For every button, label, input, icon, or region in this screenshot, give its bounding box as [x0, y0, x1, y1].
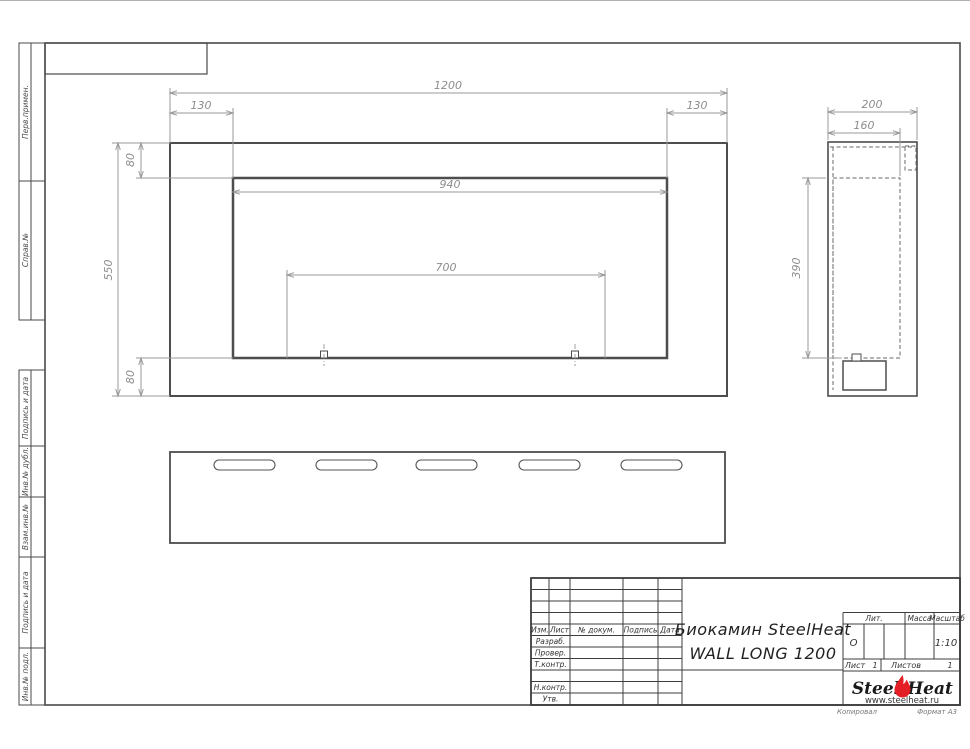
lit-massa-masshtab-section: Лит. Масса Масштаб О 1:10 — [850, 614, 966, 649]
listov-label: Листов — [890, 661, 921, 670]
lit-value: О — [850, 638, 858, 649]
dim-front-opening-width: 940 — [440, 178, 461, 191]
dim-front-height: 550 — [102, 260, 115, 281]
masshtab-label: Масштаб — [929, 614, 965, 623]
sheet-count-row: Лист 1 Листов 1 — [844, 661, 953, 670]
side-view: 200 160 390 — [790, 98, 917, 396]
masshtab-value: 1:10 — [935, 638, 957, 649]
dim-front-burner-span: 700 — [436, 261, 457, 274]
header-list: Лист — [549, 626, 570, 635]
header-podpis: Подпись — [624, 626, 658, 635]
list-value: 1 — [872, 661, 877, 670]
margin-label-podpis2: Подпись и дата — [21, 571, 30, 634]
margin-label-sprav: Справ.№ — [21, 233, 30, 267]
document-name-line1: Биокамин SteelHeat — [675, 620, 851, 639]
frame-footer: Копировал Формат А3 — [837, 708, 957, 716]
title-block: Изм. Лист № докум. Подпись Дата Разраб. … — [531, 578, 965, 706]
list-label: Лист — [844, 661, 866, 670]
burner-block — [843, 361, 886, 390]
row-prover: Провер. — [535, 649, 566, 658]
dim-front-top-flange: 80 — [124, 153, 137, 167]
row-razrab: Разраб. — [536, 637, 565, 646]
top-left-designation-box — [45, 43, 207, 74]
margin-label-podl: Инв.№ подл. — [21, 652, 30, 701]
vent-slot-1 — [214, 460, 275, 470]
margin-label-podpis1: Подпись и дата — [21, 377, 30, 440]
format-label: Формат А3 — [917, 708, 957, 716]
front-view: 1200 130 130 940 700 550 80 80 — [102, 79, 727, 396]
dim-front-left-offset: 130 — [191, 99, 212, 112]
kopiroval-label: Копировал — [837, 708, 878, 716]
row-utv: Утв. — [543, 695, 559, 704]
row-nkontr: Н.контр. — [534, 683, 568, 692]
dim-side-inner-depth: 160 — [854, 119, 875, 132]
vent-slot-2 — [316, 460, 377, 470]
burner-notch — [852, 354, 861, 361]
vent-slot-4 — [519, 460, 580, 470]
vent-slot-5 — [621, 460, 682, 470]
dim-front-right-offset: 130 — [687, 99, 708, 112]
drawing-sheet: Перв.примен. Справ.№ Подпись и дата Инв.… — [0, 0, 970, 749]
margin-label-perv: Перв.примен. — [21, 85, 30, 139]
row-tkontr: Т.контр. — [534, 660, 567, 669]
dim-front-bottom-flange: 80 — [124, 370, 137, 384]
margin-label-vzam: Взам.инв.№ — [21, 504, 30, 550]
margin-label-dubl: Инв.№ дубл. — [21, 447, 30, 496]
engineering-drawing-canvas: Перв.примен. Справ.№ Подпись и дата Инв.… — [0, 0, 970, 749]
brand-logo: Steel Heat www.steelheat.ru — [852, 675, 953, 706]
dim-side-depth: 200 — [862, 98, 883, 111]
bottom-view — [170, 452, 725, 543]
listov-value: 1 — [947, 661, 952, 670]
document-name-line2: WALL LONG 1200 — [689, 644, 836, 663]
vent-slot-3 — [416, 460, 477, 470]
header-doc-no: № докум. — [577, 626, 615, 635]
logo-website: www.steelheat.ru — [865, 696, 939, 706]
margin-labels: Перв.примен. Справ.№ Подпись и дата Инв.… — [21, 85, 30, 701]
dim-side-opening-height: 390 — [790, 258, 803, 279]
lit-label: Лит. — [864, 614, 882, 623]
header-izm: Изм. — [531, 626, 549, 635]
dim-front-width: 1200 — [434, 79, 462, 92]
